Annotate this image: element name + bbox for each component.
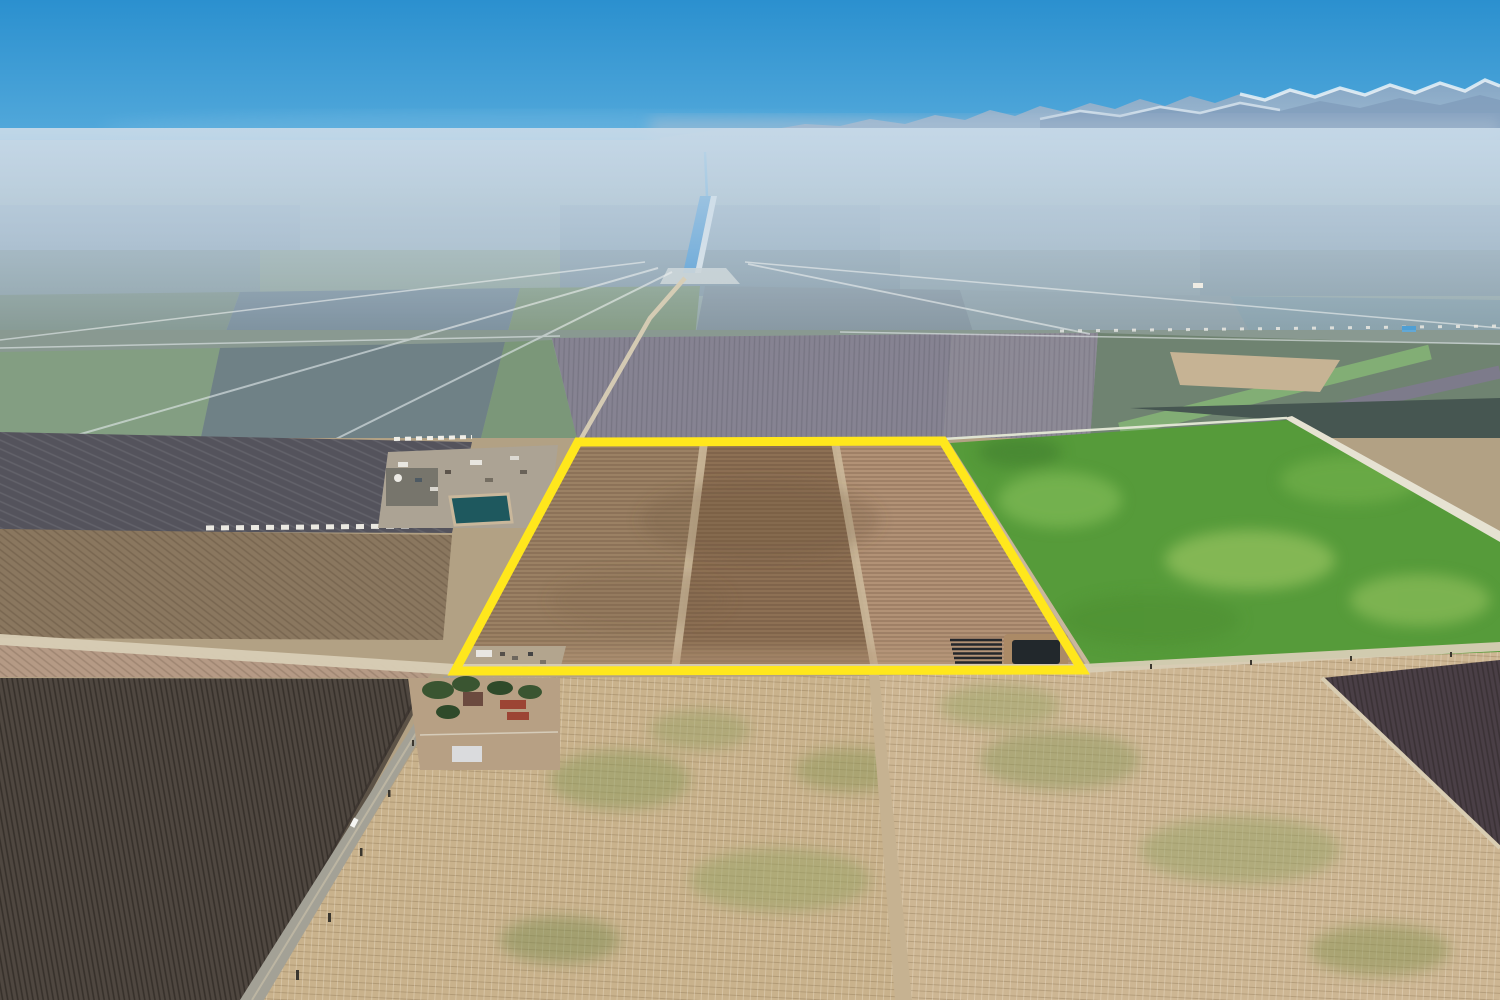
stubble-mottle (550, 750, 690, 810)
equipment-pond (450, 494, 512, 525)
vehicle-speck (485, 478, 493, 482)
utility-pole (1450, 652, 1452, 657)
utility-pole (1150, 664, 1152, 669)
vehicle-speck (520, 470, 527, 474)
utility-pole (1250, 660, 1252, 665)
vehicle-speck (470, 460, 482, 465)
pasture-mottle (1350, 574, 1490, 626)
parcel-dark-streak (640, 480, 880, 560)
vehicle-speck (540, 660, 546, 664)
stubble-mottle (650, 710, 750, 750)
utility-pole (296, 970, 299, 980)
aerial-photo (0, 0, 1500, 1000)
stubble-mottle (940, 684, 1060, 728)
utility-pole (360, 848, 363, 856)
stubble-mottle (1310, 924, 1450, 976)
farm-house (463, 692, 483, 706)
vehicle-speck (500, 652, 505, 656)
vehicle-speck (398, 462, 408, 467)
pasture-mottle (978, 436, 1062, 468)
utility-pole (1350, 656, 1352, 661)
tree-canopy (487, 681, 513, 695)
stubble-mottle (1140, 816, 1340, 884)
vehicle-speck (512, 656, 518, 660)
aerial-photo-canvas (0, 0, 1500, 1000)
tree-canopy (452, 676, 480, 692)
tree-canopy (518, 685, 542, 699)
stubble-mottle (500, 916, 620, 964)
tree-canopy (436, 705, 460, 719)
pasture-mottle (998, 472, 1122, 528)
tent-structure (394, 474, 402, 482)
stubble-mottle (980, 730, 1140, 790)
orchard-row-texture (0, 529, 452, 640)
vehicle-speck (415, 478, 422, 482)
pasture-mottle (1060, 594, 1240, 646)
vehicle-speck (528, 652, 533, 656)
tree-canopy (422, 681, 454, 699)
stubble-mottle (690, 848, 870, 912)
pasture-mottle (1165, 530, 1335, 590)
red-roof-barn (500, 700, 526, 709)
vehicle-speck (430, 487, 438, 491)
utility-pole (388, 790, 391, 797)
white-shed (476, 650, 492, 657)
farmstead (408, 676, 560, 770)
parcel-dark-streak (550, 570, 730, 630)
red-roof-barn (507, 712, 529, 720)
vehicle-speck (510, 456, 519, 460)
vehicle-speck (445, 470, 451, 474)
pond-water (1012, 640, 1060, 664)
utility-pole (328, 913, 331, 922)
utility-pole (412, 740, 414, 746)
white-barn (452, 746, 482, 762)
farm-building-speck (1193, 283, 1203, 288)
